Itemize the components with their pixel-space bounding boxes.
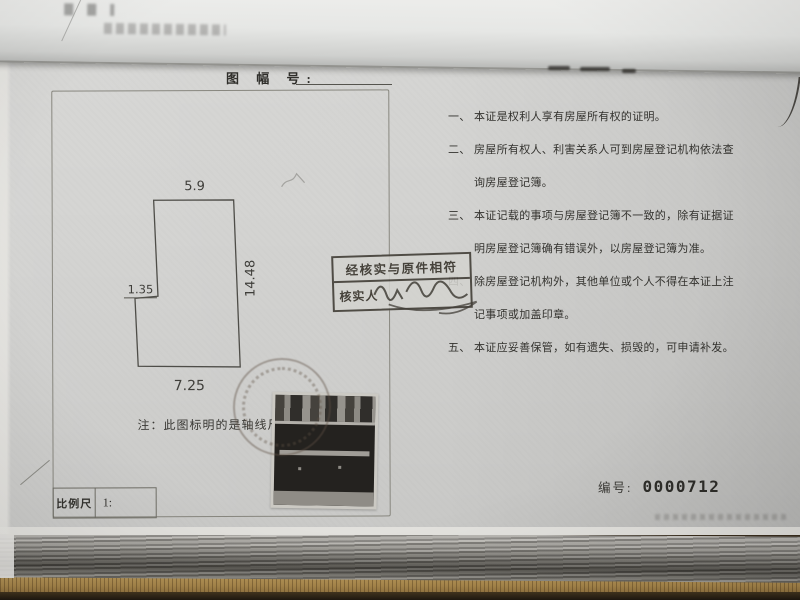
serial-number-label: 编号: bbox=[598, 481, 632, 495]
dimension-top: 5.9 bbox=[173, 179, 217, 194]
map-sheet-number-blank-line bbox=[296, 84, 392, 85]
clause-line: 二、房屋所有权人、利害关系人可到房屋登记机构依法查 bbox=[448, 134, 748, 167]
book-page-edges bbox=[0, 531, 800, 583]
page-bottom-edge bbox=[0, 527, 800, 535]
dimension-right: 14.48 bbox=[243, 255, 258, 301]
clause-number: 一、 bbox=[448, 101, 474, 134]
clause-text: 明房屋登记簿确有错误外，以房屋登记簿为准。 bbox=[474, 243, 711, 255]
verification-stamp: 经核实与原件相符 核实人 bbox=[331, 252, 473, 312]
round-seal-rim-text bbox=[242, 367, 322, 447]
bleedthrough-text-smudge bbox=[104, 23, 226, 36]
clause-text: 本证记载的事项与房屋登记簿不一致的，除有证据证 bbox=[474, 210, 734, 222]
curled-previous-page bbox=[0, 0, 800, 74]
serial-number-row: 编号:0000712 bbox=[598, 477, 720, 497]
scale-value: 1: bbox=[96, 488, 156, 517]
scale-label: 比例尺 bbox=[54, 488, 96, 517]
clause-line: 询房屋登记簿。 bbox=[448, 167, 748, 200]
dimension-step: 1.35 bbox=[124, 282, 157, 298]
round-seal bbox=[233, 358, 331, 456]
fold-ink-smudge bbox=[580, 67, 610, 71]
fold-ink-smudge bbox=[622, 69, 636, 73]
photo-detail-dot bbox=[338, 466, 341, 469]
clause-text: 除房屋登记机构外，其他单位或个人不得在本证上注 bbox=[474, 276, 734, 288]
clause-number: 三、 bbox=[448, 200, 474, 233]
clause-number: 五、 bbox=[448, 332, 474, 365]
clause-line: 四、除房屋登记机构外，其他单位或个人不得在本证上注 bbox=[448, 266, 748, 299]
clause-text: 本证是权利人享有房屋所有权的证明。 bbox=[474, 111, 666, 123]
certificate-clauses: 一、本证是权利人享有房屋所有权的证明。 二、房屋所有权人、利害关系人可到房屋登记… bbox=[448, 101, 748, 365]
underlying-page-edge bbox=[0, 530, 14, 578]
clause-text: 询房屋登记簿。 bbox=[474, 177, 553, 189]
page-edge-streaks bbox=[0, 531, 800, 583]
bleedthrough-text-smudge bbox=[64, 3, 114, 16]
clause-number: 二、 bbox=[448, 134, 474, 167]
serial-number-value: 0000712 bbox=[642, 477, 720, 496]
clause-line: 一、本证是权利人享有房屋所有权的证明。 bbox=[448, 101, 748, 134]
fine-print-smudge bbox=[655, 514, 787, 520]
fold-ink-smudge bbox=[548, 66, 570, 70]
clause-line: 明房屋登记簿确有错误外，以房屋登记簿为准。 bbox=[448, 233, 748, 266]
dimension-bottom: 7.25 bbox=[167, 378, 211, 394]
clause-text: 房屋所有权人、利害关系人可到房屋登记机构依法查 bbox=[474, 144, 734, 156]
desk-shadow-strip bbox=[0, 592, 800, 600]
scale-table: 比例尺 1: bbox=[53, 487, 157, 518]
photo-ground bbox=[274, 491, 374, 507]
clause-text: 本证应妥善保管，如有遗失、损毁的，可申请补发。 bbox=[474, 342, 734, 354]
clause-text: 记事项或加盖印章。 bbox=[474, 309, 576, 321]
verifier-signature bbox=[368, 275, 489, 323]
clause-line: 记事项或加盖印章。 bbox=[448, 299, 748, 332]
clause-line: 三、本证记载的事项与房屋登记簿不一致的，除有证据证 bbox=[448, 200, 748, 233]
left-page-sliver bbox=[0, 58, 11, 534]
photo-detail-dot bbox=[298, 467, 301, 470]
clause-line: 五、本证应妥善保管，如有遗失、损毁的，可申请补发。 bbox=[448, 332, 748, 365]
pen-mark bbox=[279, 171, 309, 191]
